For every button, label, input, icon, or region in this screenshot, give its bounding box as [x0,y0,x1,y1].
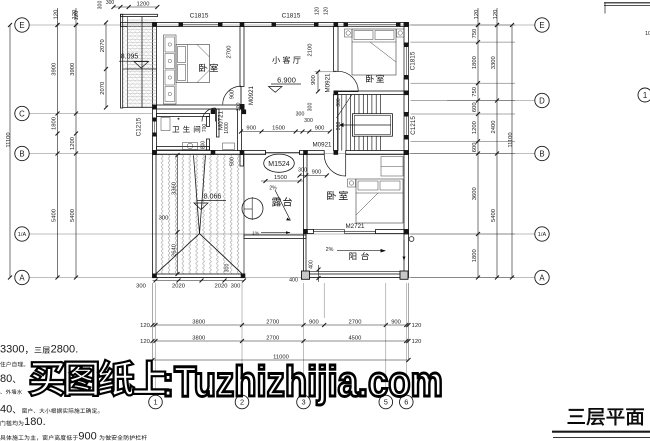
svg-text:300: 300 [225,264,231,273]
svg-text:M0921: M0921 [325,73,332,92]
svg-text:120: 120 [493,10,499,20]
svg-text:C: C [19,109,25,118]
svg-text:1500: 1500 [274,175,287,181]
svg-text:2700: 2700 [266,335,279,341]
svg-text:C1215: C1215 [136,117,143,136]
svg-text:180: 180 [24,416,42,428]
svg-text:300: 300 [296,112,305,118]
svg-text:A: A [539,273,545,282]
svg-text:2%: 2% [326,247,334,253]
svg-text:2100: 2100 [308,44,314,57]
svg-text:750: 750 [472,87,478,97]
svg-text:10: 10 [645,31,650,37]
svg-text:900: 900 [336,122,342,131]
svg-text:900: 900 [230,90,236,99]
svg-text:2020: 2020 [215,284,228,290]
svg-text:M0921: M0921 [313,141,332,148]
svg-text:900: 900 [312,170,322,176]
svg-text:3300: 3300 [0,344,24,356]
svg-text:E: E [19,21,24,30]
svg-text:40: 40 [0,404,12,416]
svg-text:2070: 2070 [100,39,106,52]
svg-text:11100: 11100 [508,132,514,147]
svg-text:700: 700 [202,124,208,133]
svg-text:300: 300 [106,0,115,6]
svg-text:M0721: M0721 [217,110,224,129]
svg-text:300: 300 [231,284,241,290]
svg-text:2020: 2020 [172,284,185,290]
svg-text:A: A [19,273,25,282]
svg-text:1200: 1200 [472,121,478,134]
svg-text:5400: 5400 [491,209,497,222]
svg-text:900: 900 [315,126,325,132]
svg-text:3800: 3800 [192,319,205,325]
svg-text:900: 900 [311,75,317,85]
svg-text:300: 300 [98,1,104,10]
svg-text:750: 750 [472,29,478,39]
svg-text:3600: 3600 [472,187,478,200]
svg-text:1: 1 [643,91,647,100]
svg-text:120: 120 [140,339,150,345]
svg-text:120: 120 [412,339,422,345]
svg-text:2700: 2700 [266,319,279,325]
svg-text:6.900: 6.900 [277,76,296,85]
svg-text:300: 300 [304,118,313,124]
svg-text:120: 120 [412,323,422,329]
svg-text:600: 600 [472,102,478,112]
svg-text:1200: 1200 [137,1,150,7]
svg-text:2700: 2700 [227,46,233,59]
svg-text:5400: 5400 [70,209,76,222]
svg-text:M2721: M2721 [346,223,365,230]
svg-text:D: D [539,96,545,105]
svg-text:500: 500 [230,157,236,166]
svg-text:1%: 1% [252,230,260,236]
svg-text:2700: 2700 [349,319,362,325]
svg-text:8.095: 8.095 [121,54,139,61]
svg-text:C1215: C1215 [410,116,417,135]
svg-text:B: B [19,149,24,158]
svg-text:2%: 2% [269,185,277,191]
svg-text:.: . [75,344,78,356]
svg-text:C1815: C1815 [410,51,417,70]
svg-text:3900: 3900 [70,63,76,76]
svg-text:E: E [539,21,544,30]
svg-text:3800: 3800 [192,335,205,341]
svg-text:900: 900 [309,319,319,325]
svg-text:900: 900 [246,126,256,132]
svg-text:300: 300 [308,103,314,112]
svg-text:300: 300 [336,98,342,107]
svg-text:800: 800 [201,141,207,150]
svg-text:2640: 2640 [172,244,178,257]
svg-text:900: 900 [78,431,96,441]
svg-text:4500: 4500 [348,335,361,341]
svg-text:600: 600 [472,143,478,153]
svg-text:1000: 1000 [224,122,230,134]
svg-text:1: 1 [153,398,157,407]
svg-text:C1815: C1815 [282,13,301,20]
svg-text:8.066: 8.066 [204,194,222,201]
svg-text:3900: 3900 [51,63,57,76]
svg-text:120: 120 [324,7,330,16]
svg-text:11100: 11100 [6,132,12,147]
svg-text:300: 300 [159,216,169,222]
svg-text:2800: 2800 [51,344,75,356]
svg-text:120: 120 [315,7,321,16]
svg-text::Tuzhizhijia.com: :Tuzhizhijia.com [162,358,443,406]
svg-text:300: 300 [298,168,307,174]
svg-text:400: 400 [309,260,315,269]
svg-text:120: 120 [474,10,480,20]
svg-text:400: 400 [289,278,298,284]
svg-text:3360: 3360 [172,182,178,195]
svg-text:120: 120 [140,323,150,329]
svg-text:1800: 1800 [51,117,57,130]
svg-text:M1524: M1524 [268,161,290,168]
svg-text:M0921: M0921 [248,85,255,104]
svg-text:1500: 1500 [272,126,285,132]
svg-text:300: 300 [136,284,146,290]
svg-text:2070: 2070 [100,82,106,95]
svg-text:120: 120 [54,10,60,20]
svg-text:80: 80 [0,373,12,385]
svg-text:C1815: C1815 [190,13,209,20]
svg-text:120: 120 [74,11,80,21]
svg-text:5400: 5400 [51,209,57,222]
svg-text:2400: 2400 [491,121,497,134]
svg-text:.: . [43,416,46,428]
svg-text:1/A: 1/A [18,232,27,238]
svg-text:900: 900 [391,319,401,325]
svg-text:1200: 1200 [70,137,76,150]
svg-text:1800: 1800 [472,56,478,69]
svg-text:1800: 1800 [472,249,478,262]
svg-text:1/A: 1/A [538,232,547,238]
svg-text:B: B [539,149,544,158]
svg-text:3300: 3300 [491,56,497,69]
